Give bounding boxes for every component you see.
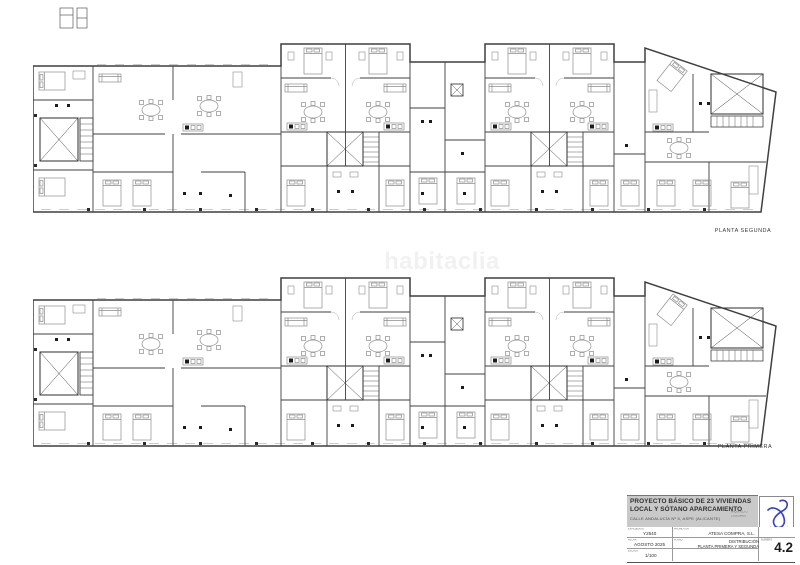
floor-label-planta-primera: PLANTA PRIMERA <box>690 444 800 450</box>
escala-value: 1/100 <box>645 553 657 558</box>
plano-line2: PLANTA PRIMERA Y SEGUNDA <box>667 544 759 549</box>
numero-value: 4.2 <box>761 540 793 555</box>
architect-sub: COLEGIADO <box>731 515 746 518</box>
expediente-value: Y2540 <box>643 531 656 536</box>
floor-plan-planta-segunda <box>33 2 777 214</box>
project-title-line1: PROYECTO BÁSICO DE 23 VIVIENDAS <box>630 498 751 506</box>
floor-plan-planta-primera <box>33 236 777 448</box>
project-address: CALLE ANDALUCÍA Nº 5, ASPE (ALICANTE) <box>630 516 720 521</box>
promotor-value: ATESA COMPRA, S.L. <box>687 531 755 536</box>
architect-label: ARQUITECTO <box>731 511 747 514</box>
title-block-fields: EXPEDIENTE Y2540 PROMOTOR ATESA COMPRA, … <box>627 527 795 561</box>
title-block: PROYECTO BÁSICO DE 23 VIVIENDAS LOCAL Y … <box>627 495 795 563</box>
logo-glyph <box>760 497 793 531</box>
title-block-header: PROYECTO BÁSICO DE 23 VIVIENDAS LOCAL Y … <box>627 495 758 528</box>
escala-label: ESCALA <box>628 550 638 553</box>
fecha-value: AGOSTO 2025 <box>634 542 665 547</box>
expediente-label: EXPEDIENTE <box>628 528 644 531</box>
plano-value: DISTRIBUCIÓN PLANTA PRIMERA Y SEGUNDA <box>667 539 759 549</box>
floor-label-planta-segunda: PLANTA SEGUNDA <box>688 228 798 234</box>
drawing-sheet: PLANTA SEGUNDA habitaclia PLANTA PRIMERA… <box>0 0 800 565</box>
